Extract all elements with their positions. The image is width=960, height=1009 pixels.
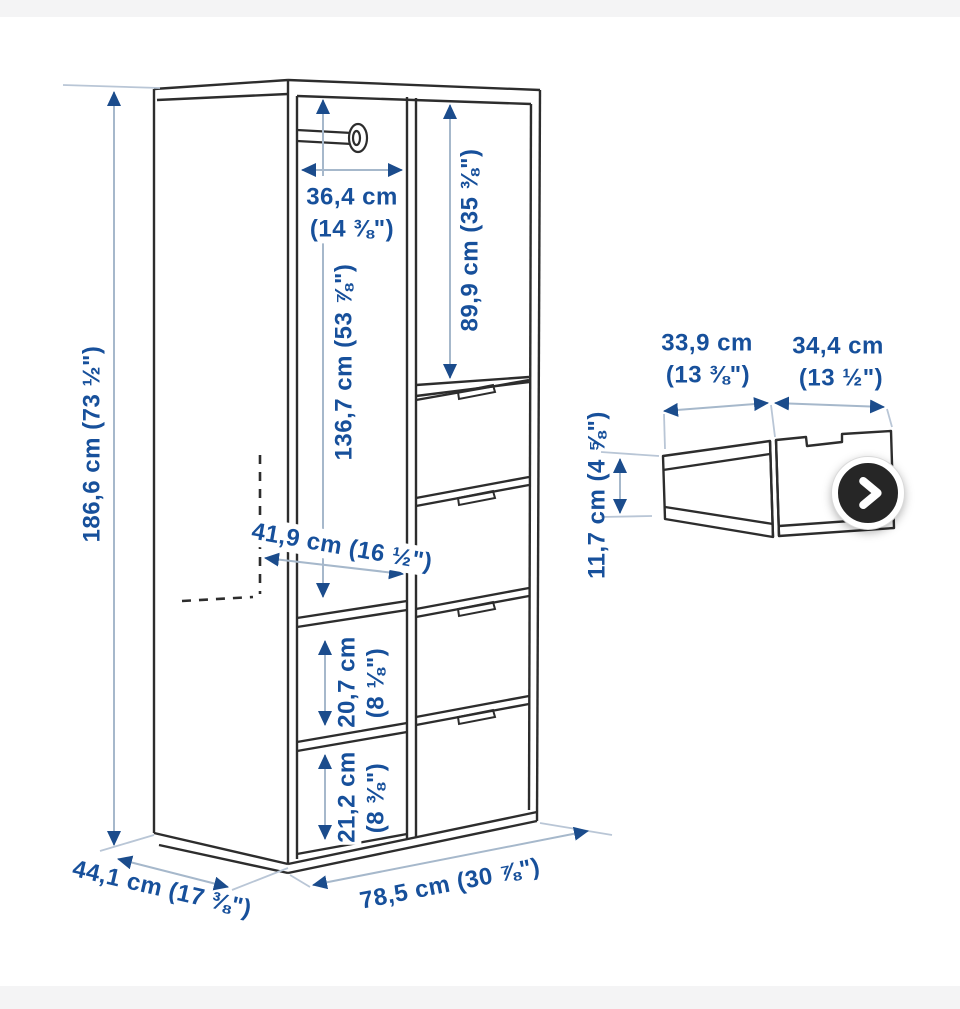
shelf-upper-cm-label: 20,7 cm	[332, 634, 361, 730]
rail-width-in-label: (14 ⅜")	[308, 214, 396, 243]
drawer-height-label: 11,7 cm (4 ⅝")	[582, 411, 611, 579]
right-top-height-label: 89,9 cm (35 ⅜")	[455, 149, 484, 332]
left-column-height-label: 136,7 cm (53 ⅞")	[329, 264, 358, 461]
clothes-rail	[297, 124, 367, 152]
shelf-upper-in-label: (8 ⅛")	[361, 646, 390, 720]
drawer-front-width-in-label: (13 ½")	[799, 363, 883, 392]
drawer-back-width-cm-label: 33,9 cm	[661, 328, 753, 357]
dashed-guide-lines	[182, 455, 260, 601]
drawer-handle-notches	[458, 385, 495, 724]
next-image-button[interactable]	[832, 457, 904, 529]
drawer-back-width-in-label: (13 ⅜")	[666, 360, 750, 389]
shelf-lower-in-label: (8 ⅜")	[361, 761, 390, 835]
drawer-front-width-cm-label: 34,4 cm	[792, 331, 884, 360]
rail-width-cm-label: 36,4 cm	[304, 182, 400, 211]
chevron-right-icon	[844, 463, 892, 523]
wardrobe-height-label: 186,6 cm (73 ½")	[77, 346, 106, 543]
shelf-lower-cm-label: 21,2 cm	[332, 749, 361, 845]
dimension-diagram-page: 186,6 cm (73 ½") 36,4 cm (14 ⅜") 136,7 c…	[0, 0, 960, 1009]
